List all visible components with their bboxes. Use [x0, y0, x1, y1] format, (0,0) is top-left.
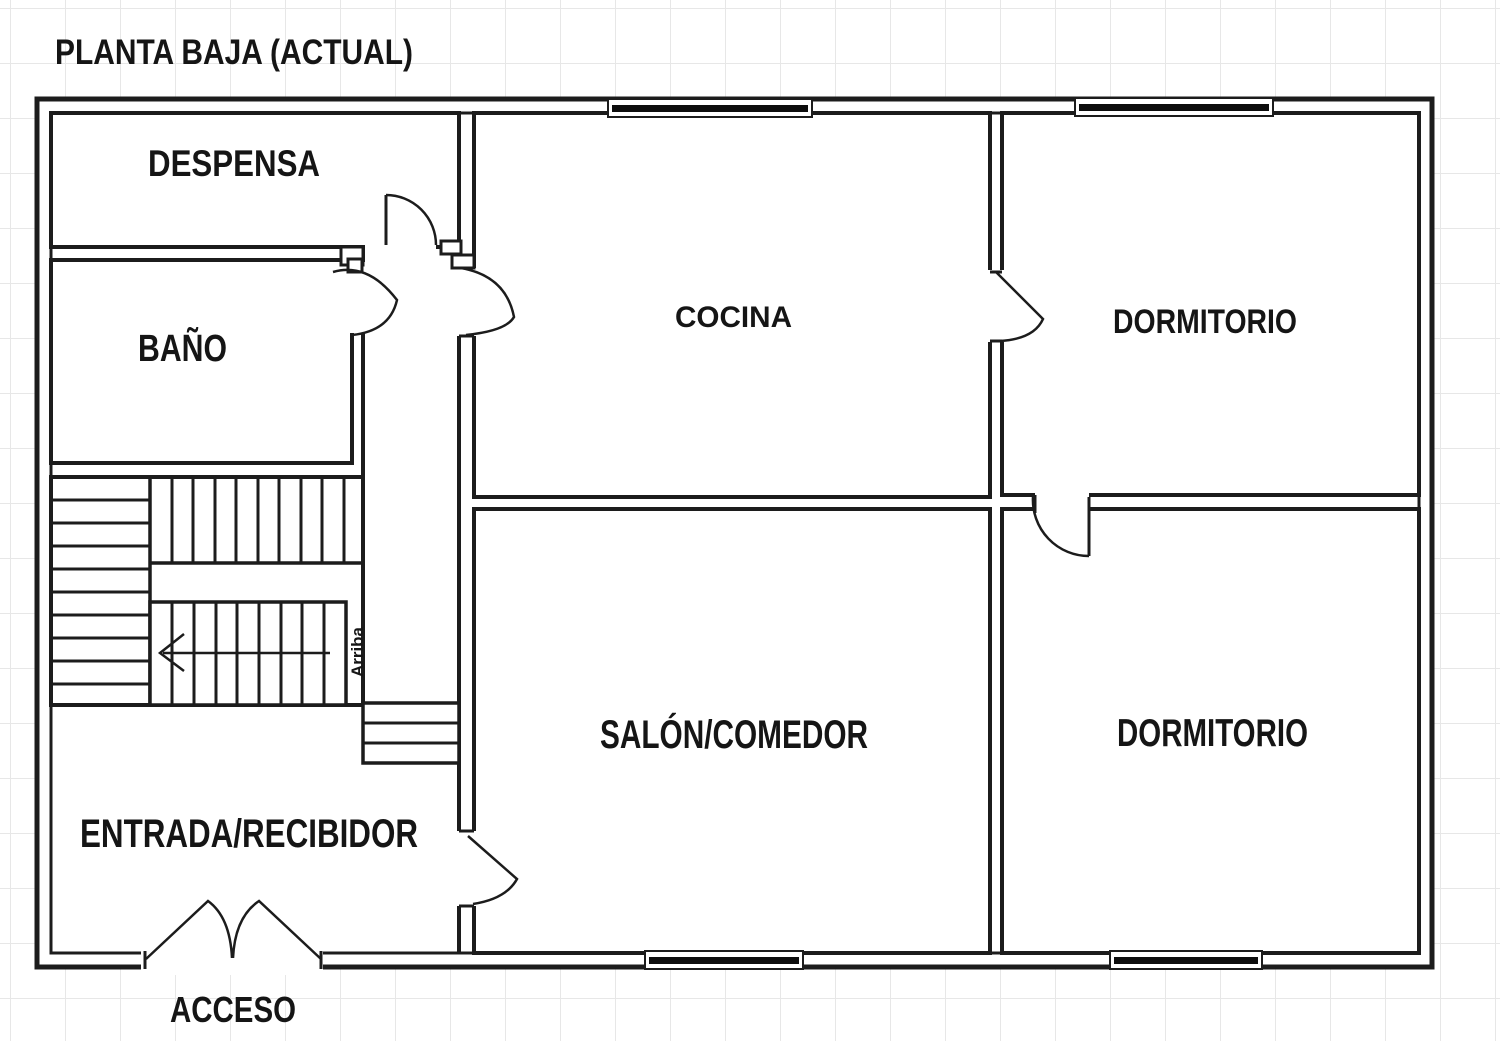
label-despensa: DESPENSA [148, 143, 320, 184]
window-dormitorio-top [1075, 98, 1273, 116]
floor-plan-page: PLANTA BAJA (ACTUAL) DESPENSA BAÑO COCIN… [0, 0, 1500, 1041]
hallway-landing-steps [363, 703, 459, 763]
page-title: PLANTA BAJA (ACTUAL) [55, 33, 413, 72]
label-cocina: COCINA [675, 301, 792, 334]
label-bano: BAÑO [138, 326, 227, 370]
window-salon [645, 951, 803, 969]
floor-plan-canvas: PLANTA BAJA (ACTUAL) DESPENSA BAÑO COCIN… [0, 0, 1500, 1041]
label-arriba: Arriba [348, 626, 367, 677]
label-acceso: ACCESO [170, 989, 296, 1030]
label-dormitorio-bottom: DORMITORIO [1117, 712, 1308, 755]
window-cocina [608, 99, 812, 117]
label-salon-comedor: SALÓN/COMEDOR [600, 711, 868, 757]
label-entrada-recibidor: ENTRADA/RECIBIDOR [80, 812, 418, 856]
window-dormitorio-bottom [1110, 951, 1262, 969]
label-dormitorio-top: DORMITORIO [1113, 303, 1297, 341]
